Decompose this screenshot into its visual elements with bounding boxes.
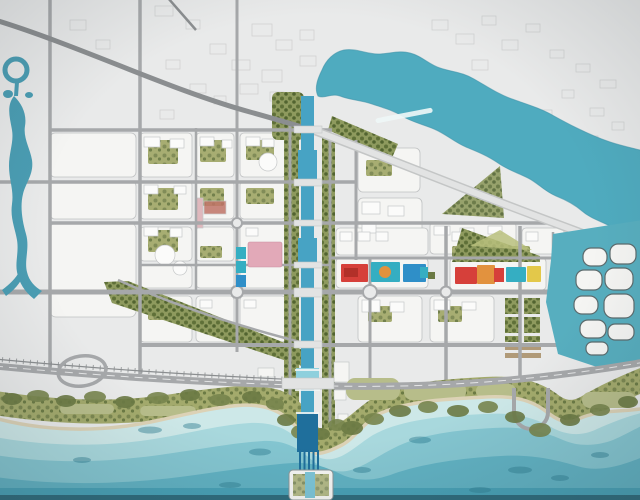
masterplan-rendering [0, 0, 640, 500]
vignette-overlay [0, 0, 640, 500]
masterplan-canvas [0, 0, 640, 500]
